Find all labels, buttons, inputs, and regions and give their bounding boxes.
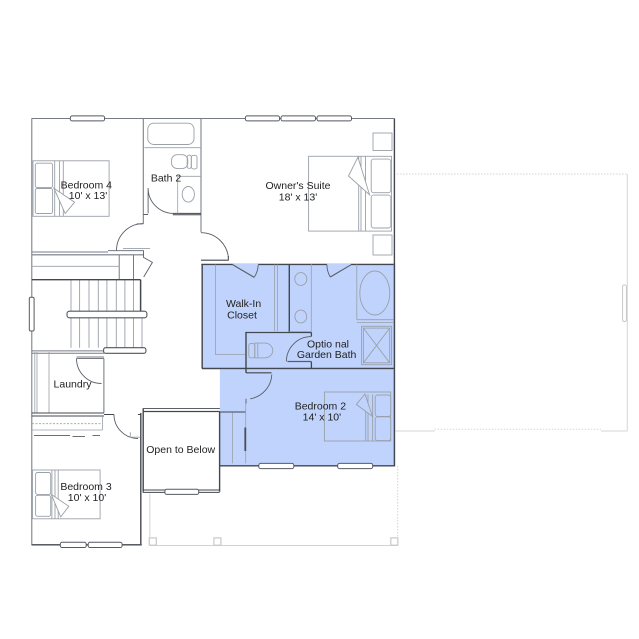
svg-text:Walk-In: Walk-In bbox=[226, 298, 261, 310]
svg-text:Garden Bath: Garden Bath bbox=[297, 349, 357, 361]
svg-text:10' x 10': 10' x 10' bbox=[68, 492, 106, 504]
svg-text:18' x 13': 18' x 13' bbox=[279, 192, 317, 204]
svg-text:Laundry: Laundry bbox=[54, 378, 93, 390]
svg-text:Closet: Closet bbox=[227, 309, 257, 321]
svg-text:10' x 13': 10' x 13' bbox=[69, 190, 107, 202]
svg-text:Open to Below: Open to Below bbox=[146, 444, 215, 456]
svg-text:14' x 10': 14' x 10' bbox=[303, 412, 341, 424]
svg-text:Bedroom 3: Bedroom 3 bbox=[60, 481, 112, 493]
svg-text:Bath 2: Bath 2 bbox=[151, 172, 182, 184]
svg-text:Owner's Suite: Owner's Suite bbox=[265, 180, 330, 192]
svg-text:Bedroom 2: Bedroom 2 bbox=[295, 400, 347, 412]
